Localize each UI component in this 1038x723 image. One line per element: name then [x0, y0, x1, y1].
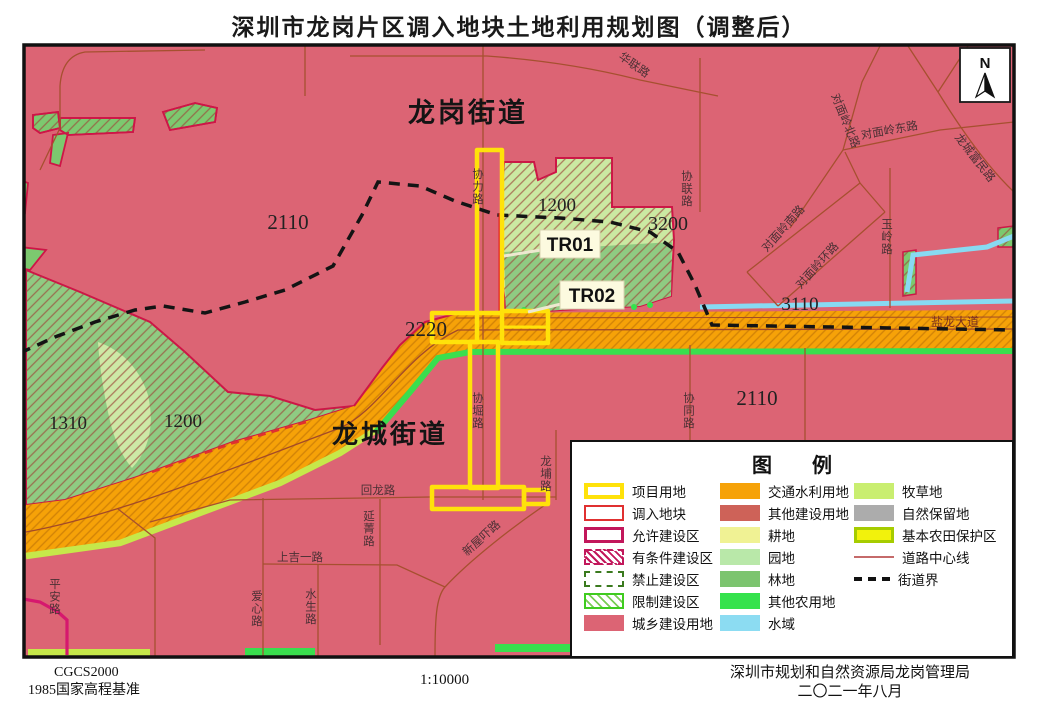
forest-swatch — [720, 571, 760, 587]
legend-column-1: 项目用地 调入地块 允许建设区 有条件建设区 禁止建设区 限制建设区 城乡建设用… — [584, 480, 713, 634]
zone-code-nw: 2110 — [267, 210, 308, 234]
orchard-swatch — [720, 549, 760, 565]
legend-item-other-agri: 其他农用地 — [720, 590, 849, 612]
planning-map-page: 深圳市龙岗片区调入地块土地利用规划图（调整后） — [0, 0, 1038, 723]
zone-code-ne: 3200 — [648, 213, 688, 235]
road-label-yanlong: 盐龙大道 — [931, 315, 979, 329]
legend-item-urban: 城乡建设用地 — [584, 612, 713, 634]
agency-name: 深圳市规划和自然资源局龙岗管理局 — [700, 664, 1000, 683]
district-label-longcheng: 龙城街道 — [332, 419, 448, 449]
legend-item-allowed: 允许建设区 — [584, 524, 713, 546]
north-arrow-label: N — [980, 55, 991, 72]
project-land-swatch — [584, 483, 624, 499]
legend-panel: 图 例 项目用地 调入地块 允许建设区 有条件建设区 禁止建设区 限制建设区 城… — [570, 440, 1014, 658]
road-label-yuling: 玉岭路 — [880, 218, 893, 256]
zone-code-mid: 1200 — [538, 195, 576, 216]
street-boundary-swatch — [854, 577, 890, 581]
legend-item-farmland: 耕地 — [720, 524, 849, 546]
water-swatch — [720, 615, 760, 631]
legend-item-conditional: 有条件建设区 — [584, 546, 713, 568]
pasture-swatch — [854, 483, 894, 499]
parcel-label-tr01: TR01 — [547, 235, 594, 256]
map-date: 二〇二一年八月 — [700, 683, 1000, 702]
zone-code-se: 2110 — [736, 386, 777, 410]
road-label-huilong: 回龙路 — [361, 483, 396, 497]
datum-note: CGCS2000 1985国家高程基准 — [28, 664, 140, 700]
legend-item-road-centerline: 道路中心线 — [854, 546, 997, 568]
other-construction-swatch — [720, 505, 760, 521]
zone-code-road-west: 2220 — [405, 317, 447, 341]
legend-item-forbidden: 禁止建设区 — [584, 568, 713, 590]
legend-item-import: 调入地块 — [584, 502, 713, 524]
legend-item-traffic: 交通水利用地 — [720, 480, 849, 502]
road-label-xieli: 协力路 — [471, 167, 484, 205]
legend-item-forest: 林地 — [720, 568, 849, 590]
farmland-swatch — [720, 527, 760, 543]
map-scale: 1:10000 — [420, 672, 469, 689]
north-arrow: N — [960, 48, 1010, 102]
legend-column-2: 交通水利用地 其他建设用地 耕地 园地 林地 其他农用地 水域 — [720, 480, 849, 634]
legend-item-project: 项目用地 — [584, 480, 713, 502]
legend-item-street-boundary: 街道界 — [854, 568, 997, 590]
zone-code-road-east: 3110 — [781, 294, 818, 315]
legend-item-pasture: 牧草地 — [854, 480, 997, 502]
road-label-pingan: 平安路 — [48, 578, 61, 616]
allowed-zone-swatch — [584, 527, 624, 543]
legend-item-other-construction: 其他建设用地 — [720, 502, 849, 524]
urban-land-swatch — [584, 615, 624, 631]
road-label-shuisheng: 水生路 — [304, 588, 317, 626]
zone-code-w1: 1310 — [49, 413, 87, 434]
forbidden-zone-swatch — [584, 571, 624, 587]
road-label-longpu: 龙埔路 — [539, 455, 552, 493]
road-label-shangjiyi: 上吉一路 — [277, 550, 323, 564]
legend-item-basic-farm: 基本农田保护区 — [854, 524, 997, 546]
legend-item-natural-reserve: 自然保留地 — [854, 502, 997, 524]
restricted-zone-swatch — [584, 593, 624, 609]
natural-reserve-swatch — [854, 505, 894, 521]
parcel-label-tr02: TR02 — [569, 286, 615, 307]
legend-column-3: 牧草地 自然保留地 基本农田保护区 道路中心线 街道界 — [854, 480, 997, 590]
conditional-zone-swatch — [584, 549, 624, 565]
zone-code-w2: 1200 — [164, 411, 202, 432]
basic-farm-swatch — [854, 527, 894, 543]
legend-item-restricted: 限制建设区 — [584, 590, 713, 612]
legend-item-water: 水域 — [720, 612, 849, 634]
datum-line2: 1985国家高程基准 — [28, 682, 140, 700]
other-agri-swatch — [720, 593, 760, 609]
road-label-xietong: 协同路 — [682, 391, 695, 429]
road-label-yanjing: 延菁路 — [362, 510, 375, 548]
traffic-land-swatch — [720, 483, 760, 499]
road-label-xielian: 协联路 — [680, 169, 693, 207]
road-label-xieduan: 协堀路 — [471, 391, 484, 429]
legend-title: 图 例 — [572, 449, 1012, 478]
district-label-longgang: 龙岗街道 — [408, 97, 528, 128]
legend-item-orchard: 园地 — [720, 546, 849, 568]
agency-note: 深圳市规划和自然资源局龙岗管理局 二〇二一年八月 — [700, 664, 1000, 702]
datum-line1: CGCS2000 — [54, 664, 140, 682]
import-parcel-swatch — [584, 505, 624, 521]
road-centerline-swatch — [854, 549, 894, 565]
road-label-aixin: 爱心路 — [250, 590, 263, 628]
